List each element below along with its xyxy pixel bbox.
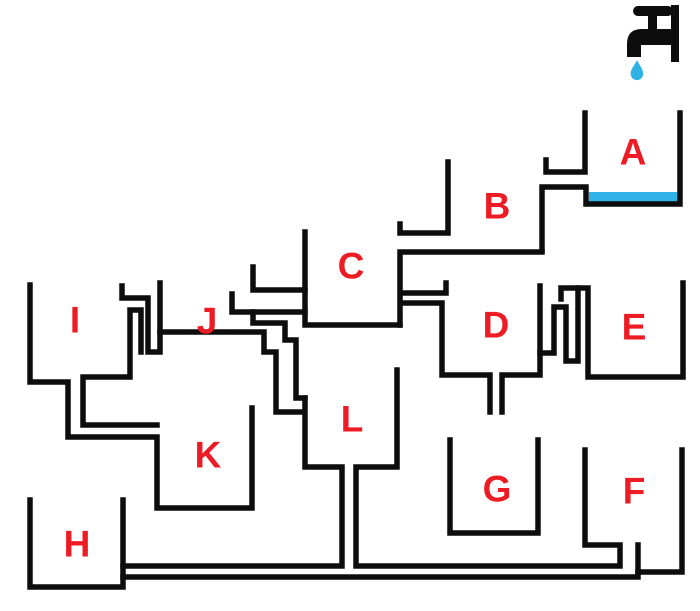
wall-a-floor [542, 113, 680, 250]
container-label-l: L [341, 401, 364, 438]
pipe-j-l-stair-inner [160, 332, 303, 412]
pipe-j-c-bottom [232, 294, 305, 312]
puzzle-diagram: A B C D E F G H I J K L [0, 0, 700, 611]
wall-b-floor [400, 252, 542, 325]
wall-b-left [400, 162, 448, 233]
container-label-f: F [623, 473, 646, 510]
pipe-j-l-stair-outer [253, 312, 305, 398]
container-label-i: I [70, 302, 80, 339]
pipe-c-d-top [403, 283, 446, 293]
container-label-g: G [483, 471, 512, 508]
walls-and-pipes [30, 113, 683, 587]
container-label-h: H [64, 526, 91, 563]
container-label-b: B [484, 188, 511, 225]
water-drop-icon [631, 60, 644, 80]
container-label-e: E [622, 309, 647, 346]
wall-a-left [546, 113, 585, 172]
channel-bottom [123, 545, 638, 577]
container-label-k: K [195, 437, 222, 474]
pipe-network [0, 0, 700, 611]
container-label-j: J [197, 303, 218, 340]
wall-d-left [403, 303, 490, 412]
container-label-c: C [338, 248, 365, 285]
pipe-j-c-top [253, 267, 305, 290]
container-label-d: D [483, 307, 510, 344]
container-label-a: A [620, 134, 647, 171]
faucet-icon [627, 5, 679, 62]
